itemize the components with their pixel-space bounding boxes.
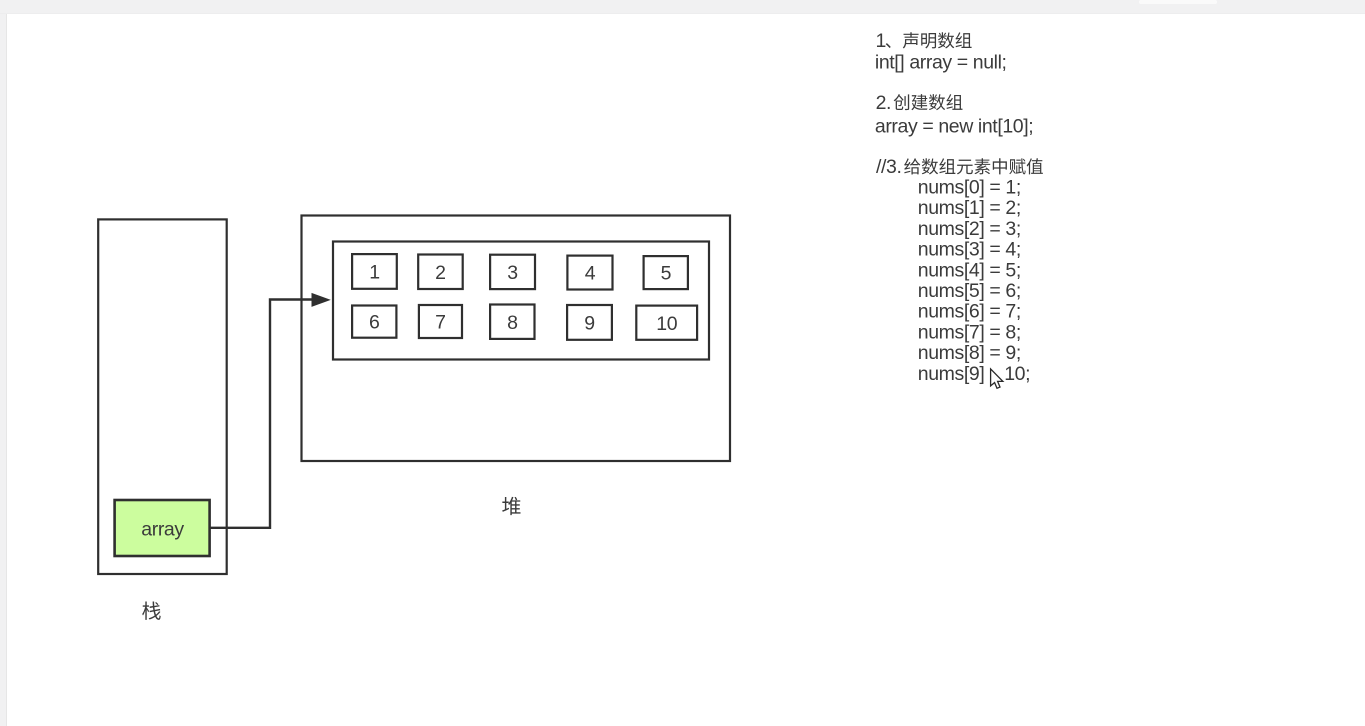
svg-text:nums[6] = 7;: nums[6] = 7; xyxy=(918,301,1021,323)
svg-text:5: 5 xyxy=(661,263,672,285)
svg-text:3: 3 xyxy=(507,262,517,284)
svg-text:array = new int[10];: array = new int[10]; xyxy=(875,115,1033,137)
svg-text:nums[0] = 1;: nums[0] = 1; xyxy=(918,177,1021,199)
svg-text:7: 7 xyxy=(435,312,445,334)
svg-text:2.: 2. xyxy=(876,92,891,114)
svg-text:nums[2] = 3;: nums[2] = 3; xyxy=(918,218,1021,240)
svg-text:1: 1 xyxy=(369,262,379,284)
svg-text:nums[7] = 8;: nums[7] = 8; xyxy=(918,321,1021,343)
svg-text:8: 8 xyxy=(507,312,517,334)
svg-text:6: 6 xyxy=(369,312,379,334)
svg-text:9: 9 xyxy=(584,313,594,335)
svg-text:2: 2 xyxy=(435,262,445,284)
svg-text:nums[8] = 9;: nums[8] = 9; xyxy=(918,342,1021,364)
svg-text:array: array xyxy=(141,518,184,540)
svg-text:nums[5] = 6;: nums[5] = 6; xyxy=(918,280,1021,302)
svg-text:nums[9]: nums[9] xyxy=(918,363,985,385)
svg-text:10: 10 xyxy=(656,313,677,335)
svg-text:4: 4 xyxy=(585,263,596,285)
svg-text:int[] array = null;: int[] array = null; xyxy=(875,52,1007,74)
svg-text:10;: 10; xyxy=(1004,363,1030,385)
svg-text:nums[3] = 4;: nums[3] = 4; xyxy=(918,239,1021,261)
svg-text:nums[4] = 5;: nums[4] = 5; xyxy=(918,259,1021,281)
svg-text://3.: //3. xyxy=(876,156,902,178)
svg-text:nums[1] = 2;: nums[1] = 2; xyxy=(918,197,1021,219)
svg-text:1: 1 xyxy=(876,30,886,52)
